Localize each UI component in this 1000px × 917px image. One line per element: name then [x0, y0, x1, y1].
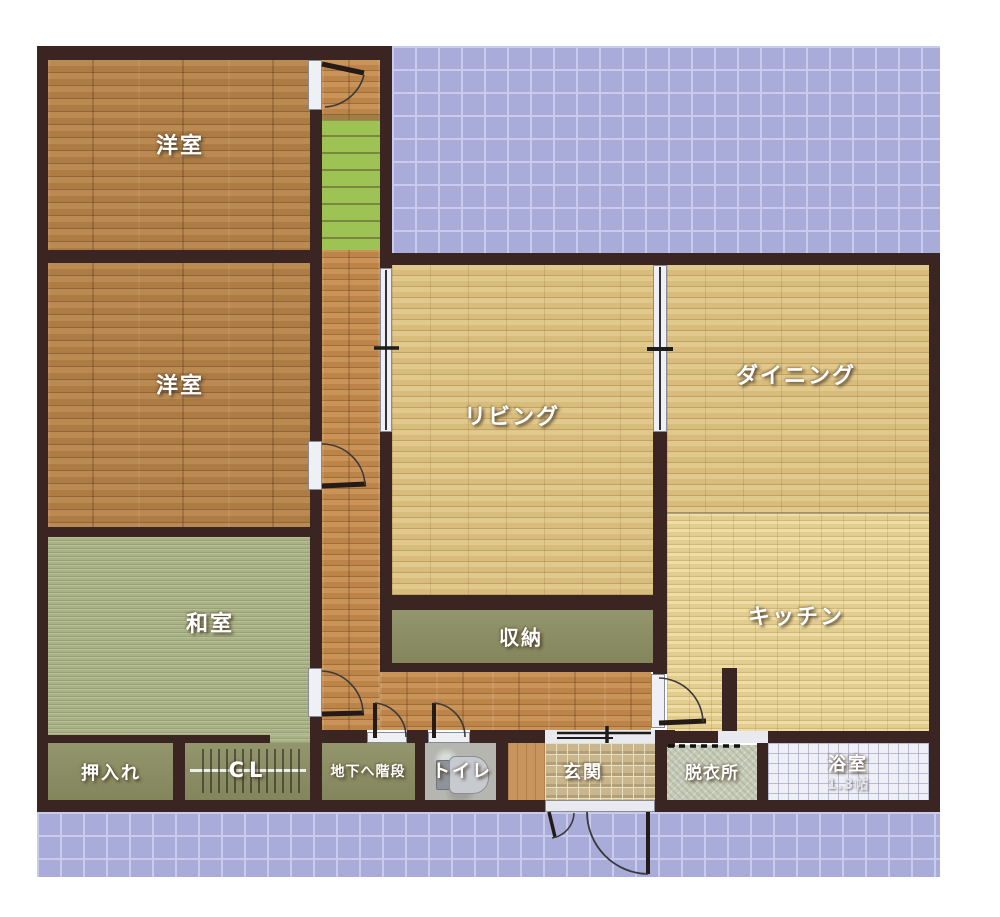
wall-segment	[415, 735, 425, 800]
staircase-landing-edge	[322, 114, 380, 121]
room-kitchen-label: キッチン	[748, 599, 844, 631]
wall-segment	[37, 46, 48, 812]
room-living-floor	[392, 265, 653, 597]
entrance-threshold	[545, 800, 655, 812]
room-washitsu-floor-notch	[270, 735, 310, 743]
wall-segment	[37, 735, 270, 743]
room-living-label: リビング	[464, 399, 560, 431]
room-dining-label: ダイニング	[736, 358, 856, 390]
staircase-up	[322, 120, 380, 250]
wall-segment	[37, 250, 322, 263]
wall-segment	[496, 730, 508, 800]
wall-segment	[37, 800, 545, 812]
wall-segment	[722, 668, 737, 731]
wall-segment	[388, 253, 940, 265]
wall-segment	[929, 253, 940, 812]
wall-segment	[380, 432, 392, 672]
genkan-step-strip	[508, 743, 545, 803]
sliding-door-opening	[653, 265, 667, 432]
sliding-door-opening	[380, 268, 392, 432]
room-closet-label: CL	[229, 758, 268, 782]
corridor-horizontal-floor	[380, 672, 651, 730]
wall-segment	[388, 663, 667, 672]
porch-tile-area	[37, 812, 940, 877]
dining-kitchen-boundary	[667, 512, 929, 514]
floor-plan: 洋室 洋室 和室 リビング ダイニング キッチン 収納 押入れ CL 地下へ階段…	[0, 0, 1000, 917]
sliding-door-opening	[718, 731, 768, 743]
room-basement-stairs-label: 地下へ階段	[331, 761, 406, 781]
wall-segment	[322, 730, 367, 743]
wall-segment	[655, 800, 940, 812]
door-opening	[308, 668, 322, 717]
wall-segment	[653, 432, 667, 674]
genkan-sliding-door-zone	[545, 730, 655, 743]
door-opening	[651, 674, 665, 728]
balcony-tile-area	[392, 46, 940, 253]
room-datsuijo-label: 脱衣所	[685, 759, 739, 784]
wall-segment	[380, 60, 392, 268]
wall-segment	[655, 743, 667, 800]
wall-segment	[388, 595, 667, 610]
room-bathroom-size-label: 1.3帖	[827, 774, 870, 794]
wall-segment	[310, 490, 322, 668]
wall-segment	[310, 110, 322, 441]
room-shunou-label: 収納	[499, 622, 543, 651]
room-genkan-label: 玄関	[563, 758, 603, 784]
door-opening	[308, 441, 322, 490]
wall-segment	[310, 717, 322, 800]
wall-segment	[173, 735, 185, 800]
room-washitsu-floor	[48, 537, 310, 735]
room-washitsu-label: 和室	[186, 606, 234, 638]
room-yoshitsu1-label: 洋室	[156, 128, 204, 160]
door-opening	[428, 732, 470, 743]
wall-segment	[667, 731, 718, 743]
room-bathroom-label: 浴室	[828, 750, 868, 776]
door-opening	[367, 732, 407, 743]
room-oshiire-label: 押入れ	[81, 759, 141, 785]
wall-segment	[757, 743, 768, 800]
wall-segment	[768, 731, 929, 743]
wall-segment	[37, 46, 392, 60]
wall-segment	[37, 527, 322, 537]
room-yoshitsu2-label: 洋室	[156, 368, 204, 400]
room-toilet-label: トイレ	[432, 757, 492, 783]
door-opening	[308, 60, 322, 110]
